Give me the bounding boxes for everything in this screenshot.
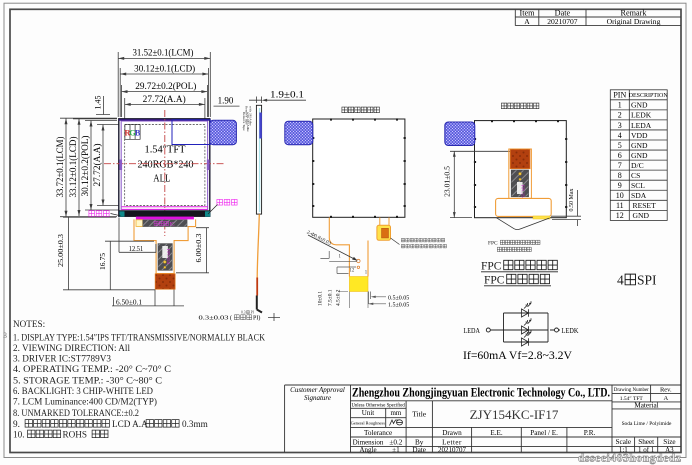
svg-text:4: 4: [617, 273, 624, 288]
svg-text:Rev.: Rev.: [660, 387, 672, 394]
svg-text:GND: GND: [631, 151, 648, 160]
svg-text:CS: CS: [631, 171, 640, 180]
svg-text:ROHS: ROHS: [63, 430, 88, 440]
svg-text:7. LCM Luminance:400 CD/M2(TYP: 7. LCM Luminance:400 CD/M2(TYP): [13, 396, 157, 406]
svg-text:PIN: PIN: [613, 91, 626, 100]
svg-text:Angle: Angle: [359, 446, 376, 454]
svg-text:1.90: 1.90: [218, 95, 234, 105]
svg-text:with 3M Adhe: with 3M Adhe: [249, 106, 253, 126]
svg-text:A: A: [524, 17, 530, 26]
svg-text:RESET: RESET: [633, 201, 657, 210]
svg-text:20210707: 20210707: [547, 17, 578, 26]
svg-text:29.72±0.2(POL): 29.72±0.2(POL): [135, 81, 196, 91]
svg-text:SPI: SPI: [637, 273, 657, 288]
svg-text:4. OPERATING TEMP.: -20° C~7: 4. OPERATING TEMP.: -20° C~70° C: [13, 364, 171, 374]
svg-text:Title: Title: [412, 410, 427, 419]
svg-text:11: 11: [616, 201, 624, 210]
svg-text:GND: GND: [631, 141, 648, 150]
svg-text:mm: mm: [390, 409, 401, 417]
svg-text:Date: Date: [412, 446, 426, 454]
svg-text:LEDA: LEDA: [631, 121, 652, 130]
svg-text:1.45: 1.45: [94, 96, 103, 110]
svg-text:30.12±0.2(POL): 30.12±0.2(POL): [80, 135, 90, 196]
svg-text:Unit: Unit: [362, 409, 375, 417]
svg-text:12.51: 12.51: [129, 245, 144, 253]
svg-text:2. VIEWING DIRECTION: All: 2. VIEWING DIRECTION: All: [13, 343, 130, 353]
svg-text:1.9±0.1: 1.9±0.1: [270, 90, 304, 100]
svg-text:DESCRIPTION: DESCRIPTION: [629, 93, 669, 99]
svg-text:5: 5: [618, 141, 622, 150]
svg-text:LCD A.A: LCD A.A: [112, 419, 148, 429]
svg-text:PI): PI): [253, 315, 260, 322]
svg-text:33.12±0.1(LCD): 33.12±0.1(LCD): [68, 137, 78, 198]
svg-text:12: 12: [616, 211, 624, 220]
svg-text:1. DISPLAY TYPE:1.54″IPS TFT/T: 1. DISPLAY TYPE:1.54″IPS TFT/TRANSMISSIV…: [13, 332, 265, 342]
svg-text:ZJY154KC-IF17: ZJY154KC-IF17: [470, 407, 559, 422]
svg-text:3. DRIVER IC:ST7789V3: 3. DRIVER IC:ST7789V3: [13, 353, 111, 363]
svg-text:B: B: [135, 128, 141, 137]
svg-text:0.50 Max: 0.50 Max: [569, 189, 575, 212]
svg-text:If=60mA Vf=2.8~3.2V: If=60mA Vf=2.8~3.2V: [463, 350, 573, 362]
svg-text:25.00±0.3: 25.00±0.3: [57, 234, 65, 267]
svg-text:FPC: FPC: [481, 261, 502, 273]
svg-text:Sheet: Sheet: [638, 438, 654, 446]
svg-text:6. BACKLIGHT: 3 CHIP-WHITE LED: 6. BACKLIGHT: 3 CHIP-WHITE LED: [13, 386, 153, 396]
svg-text:0.3: 0.3: [241, 311, 246, 315]
svg-text:Signature: Signature: [304, 394, 331, 402]
svg-text:6.00±0.3: 6.00±0.3: [195, 233, 203, 262]
svg-text:27.72(A.A): 27.72(A.A): [92, 144, 102, 187]
svg-text:Panel / E.: Panel / E.: [530, 429, 558, 437]
svg-text:FPC: FPC: [484, 275, 505, 287]
svg-text:±1: ±1: [392, 446, 400, 454]
svg-text:VDD: VDD: [631, 131, 648, 140]
svg-text:Drawn: Drawn: [442, 429, 462, 437]
svg-text:Soda Lime / Polyimide: Soda Lime / Polyimide: [622, 421, 672, 427]
svg-text:Customer Approval: Customer Approval: [290, 386, 345, 394]
svg-text:LEDK: LEDK: [562, 326, 579, 335]
svg-text:10.: 10.: [13, 430, 24, 440]
svg-text:D/C: D/C: [631, 161, 644, 170]
svg-text:0.5±0.05: 0.5±0.05: [388, 296, 409, 302]
svg-text:SCL: SCL: [631, 181, 645, 190]
svg-text:0.3mm: 0.3mm: [182, 419, 208, 429]
svg-text:240RGB*240: 240RGB*240: [138, 160, 194, 171]
svg-text:E.E.: E.E.: [490, 429, 503, 437]
svg-text:6.50±0.1: 6.50±0.1: [116, 298, 142, 306]
svg-text:12: 12: [350, 269, 355, 274]
svg-text:P.R.: P.R.: [584, 429, 596, 437]
svg-text:5. STORAGE TEMP.: -30° C~80°: 5. STORAGE TEMP.: -30° C~80° C: [13, 375, 162, 385]
svg-text:NOTES:: NOTES:: [13, 319, 45, 329]
svg-text:GND: GND: [633, 211, 650, 220]
svg-text:9.: 9.: [13, 419, 20, 429]
svg-text:9: 9: [618, 181, 622, 190]
svg-text:FPC: FPC: [488, 241, 498, 247]
svg-text:Remove Tape: Remove Tape: [245, 106, 249, 125]
svg-text:33.72±0.1(LCM): 33.72±0.1(LCM): [55, 136, 65, 197]
svg-text:1: 1: [618, 101, 622, 110]
svg-text:LEDA: LEDA: [464, 326, 481, 335]
svg-text:4.5±0.2: 4.5±0.2: [336, 289, 342, 306]
svg-text:IC: IC: [170, 223, 176, 228]
svg-text:3: 3: [618, 121, 622, 130]
svg-text:ALL: ALL: [153, 174, 170, 185]
svg-text:GND: GND: [631, 101, 648, 110]
svg-text:Size: Size: [663, 438, 675, 446]
svg-text:Zhengzhou Zhongjingyuan Electr: Zhengzhou Zhongjingyuan Electronic Techn…: [352, 386, 610, 400]
svg-text:10: 10: [616, 191, 624, 200]
svg-text:1.54″TFT: 1.54″TFT: [145, 144, 187, 155]
svg-text:(: (: [230, 315, 232, 322]
svg-text:1.5±0.05: 1.5±0.05: [388, 303, 409, 309]
svg-text:10±0.1: 10±0.1: [318, 291, 324, 306]
svg-text:0.3±0.03: 0.3±0.03: [199, 316, 229, 322]
svg-text:7.5±0.1: 7.5±0.1: [328, 289, 334, 306]
svg-text:2: 2: [618, 111, 622, 120]
svg-text:FPC154: FPC154: [166, 249, 171, 265]
svg-text:Scale: Scale: [616, 438, 632, 446]
svg-text:Material: Material: [634, 402, 658, 410]
svg-text:23.01±0.5: 23.01±0.5: [442, 166, 451, 197]
svg-text:6: 6: [618, 151, 622, 160]
svg-text:3: 3: [3, 331, 7, 340]
svg-text:Original Drawing: Original Drawing: [607, 17, 661, 26]
svg-text:20210707: 20210707: [438, 446, 467, 454]
svg-text:16.75: 16.75: [99, 253, 107, 270]
svg-text:Tolerance: Tolerance: [364, 429, 392, 437]
svg-text:30.12±0.1(LCD): 30.12±0.1(LCD): [134, 63, 195, 73]
svg-text:7: 7: [618, 161, 622, 170]
svg-text:A: A: [663, 395, 668, 402]
svg-text:dsseei403hongdedz: dsseei403hongdedz: [578, 453, 682, 465]
svg-text:Drawing Number: Drawing Number: [614, 388, 649, 393]
svg-text:27.72(A.A): 27.72(A.A): [143, 94, 186, 104]
svg-text:SDA: SDA: [631, 191, 647, 200]
svg-text:LEDK: LEDK: [631, 111, 652, 120]
svg-text:4: 4: [618, 131, 622, 140]
svg-text:8: 8: [618, 171, 622, 180]
svg-text:Unless Otherwise Specified: Unless Otherwise Specified: [351, 403, 405, 408]
svg-text:8. UNMARKED TOLERANCE:±0.2: 8. UNMARKED TOLERANCE:±0.2: [13, 408, 139, 418]
svg-text:31.52±0.1(LCM): 31.52±0.1(LCM): [133, 48, 194, 58]
svg-text:General Roughness: General Roughness: [351, 420, 386, 425]
